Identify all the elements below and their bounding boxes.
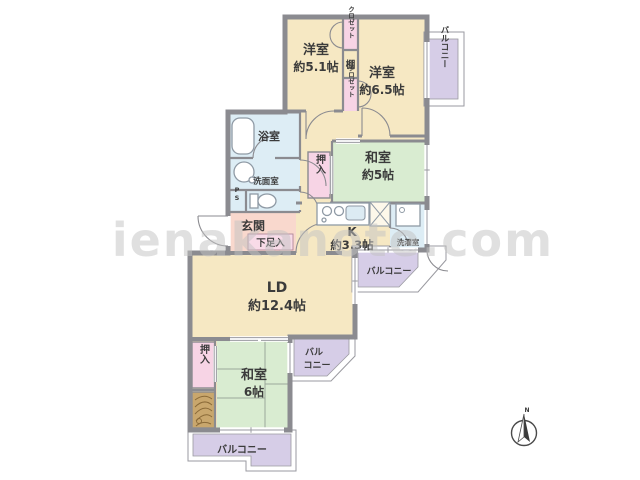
balcony-mid-label-2: コニー	[303, 361, 330, 371]
room-japanese1-name: 和室	[365, 150, 391, 166]
floorplan-image: 洋室 約5.1帖 洋室 約6.5帖 クロゼット 棚 クロゼット バルコニー 浴室…	[0, 0, 640, 480]
bath-label: 浴室	[258, 129, 280, 143]
balcony-kitchen-label: バルコニー	[367, 266, 412, 277]
balcony-top-label: バルコニー	[439, 25, 449, 68]
toilet-bowl	[258, 194, 276, 208]
washroom-label: 洗面室	[253, 176, 279, 187]
room-japanese1-size: 約5帖	[362, 167, 394, 182]
closet-lower-label: クロゼット	[347, 64, 355, 97]
compass-north-label: N	[524, 407, 529, 414]
room-western1-name: 洋室	[303, 42, 329, 58]
ld-size: 約12.4帖	[248, 298, 306, 314]
toilet-tank	[250, 194, 258, 208]
bathtub	[232, 118, 254, 154]
oshiire1-label: 押入	[314, 153, 326, 175]
room-western1-size: 約5.1帖	[293, 59, 338, 74]
tokonoma	[192, 392, 215, 428]
ld-name: LD	[267, 280, 288, 296]
oshiire2-label: 押入	[198, 343, 210, 365]
room-japanese2-name: 和室	[241, 367, 267, 383]
room-japanese2-size: 6帖	[244, 384, 264, 399]
compass-icon: N	[512, 407, 537, 446]
room-western2-name: 洋室	[369, 65, 395, 81]
watermark: ienakanote.com	[112, 213, 554, 267]
balcony-bottom-label: バルコニー	[217, 444, 267, 456]
ps-label: PS	[233, 186, 241, 202]
balcony-mid-label-1: バル	[305, 347, 323, 358]
closet-upper-label: クロゼット	[347, 5, 355, 38]
floor-plan: 洋室 約5.1帖 洋室 約6.5帖 クロゼット 棚 クロゼット バルコニー 浴室…	[0, 0, 640, 480]
balcony-middle	[290, 335, 355, 381]
room-western2-size: 約6.5帖	[359, 82, 404, 97]
